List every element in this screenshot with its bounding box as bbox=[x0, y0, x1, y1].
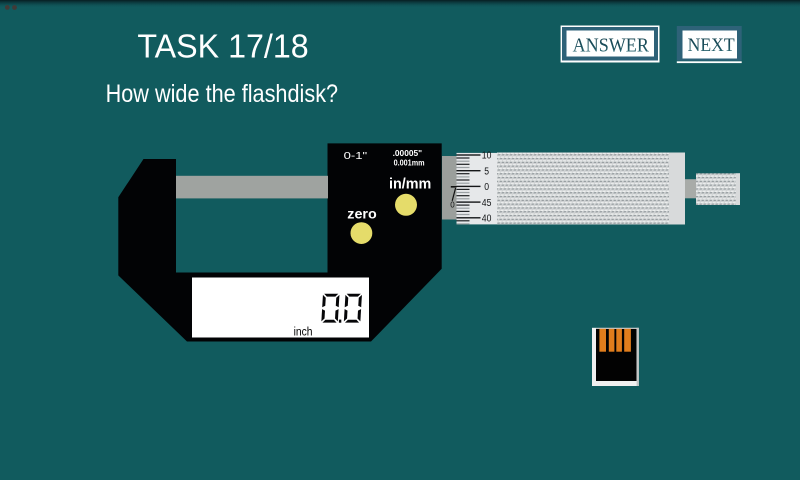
svg-text:0: 0 bbox=[484, 182, 489, 193]
svg-text:NEXT: NEXT bbox=[688, 35, 736, 56]
svg-text:ANSWER: ANSWER bbox=[573, 34, 650, 56]
svg-text:inch: inch bbox=[294, 327, 313, 339]
svg-text:45: 45 bbox=[482, 198, 492, 209]
svg-text:0-1": 0-1" bbox=[344, 151, 368, 162]
svg-text:zero: zero bbox=[347, 205, 376, 221]
svg-text:40: 40 bbox=[482, 214, 492, 225]
svg-text:How wide the flashdisk?: How wide the flashdisk? bbox=[106, 80, 339, 108]
svg-text:0: 0 bbox=[450, 201, 455, 210]
svg-text:10: 10 bbox=[482, 151, 492, 162]
svg-text:.00005": .00005" bbox=[393, 148, 423, 158]
svg-text:5: 5 bbox=[484, 166, 489, 177]
svg-text:TASK 17/18: TASK 17/18 bbox=[137, 28, 308, 65]
svg-text:in/mm: in/mm bbox=[389, 176, 431, 193]
svg-text:0.001mm: 0.001mm bbox=[394, 159, 425, 168]
